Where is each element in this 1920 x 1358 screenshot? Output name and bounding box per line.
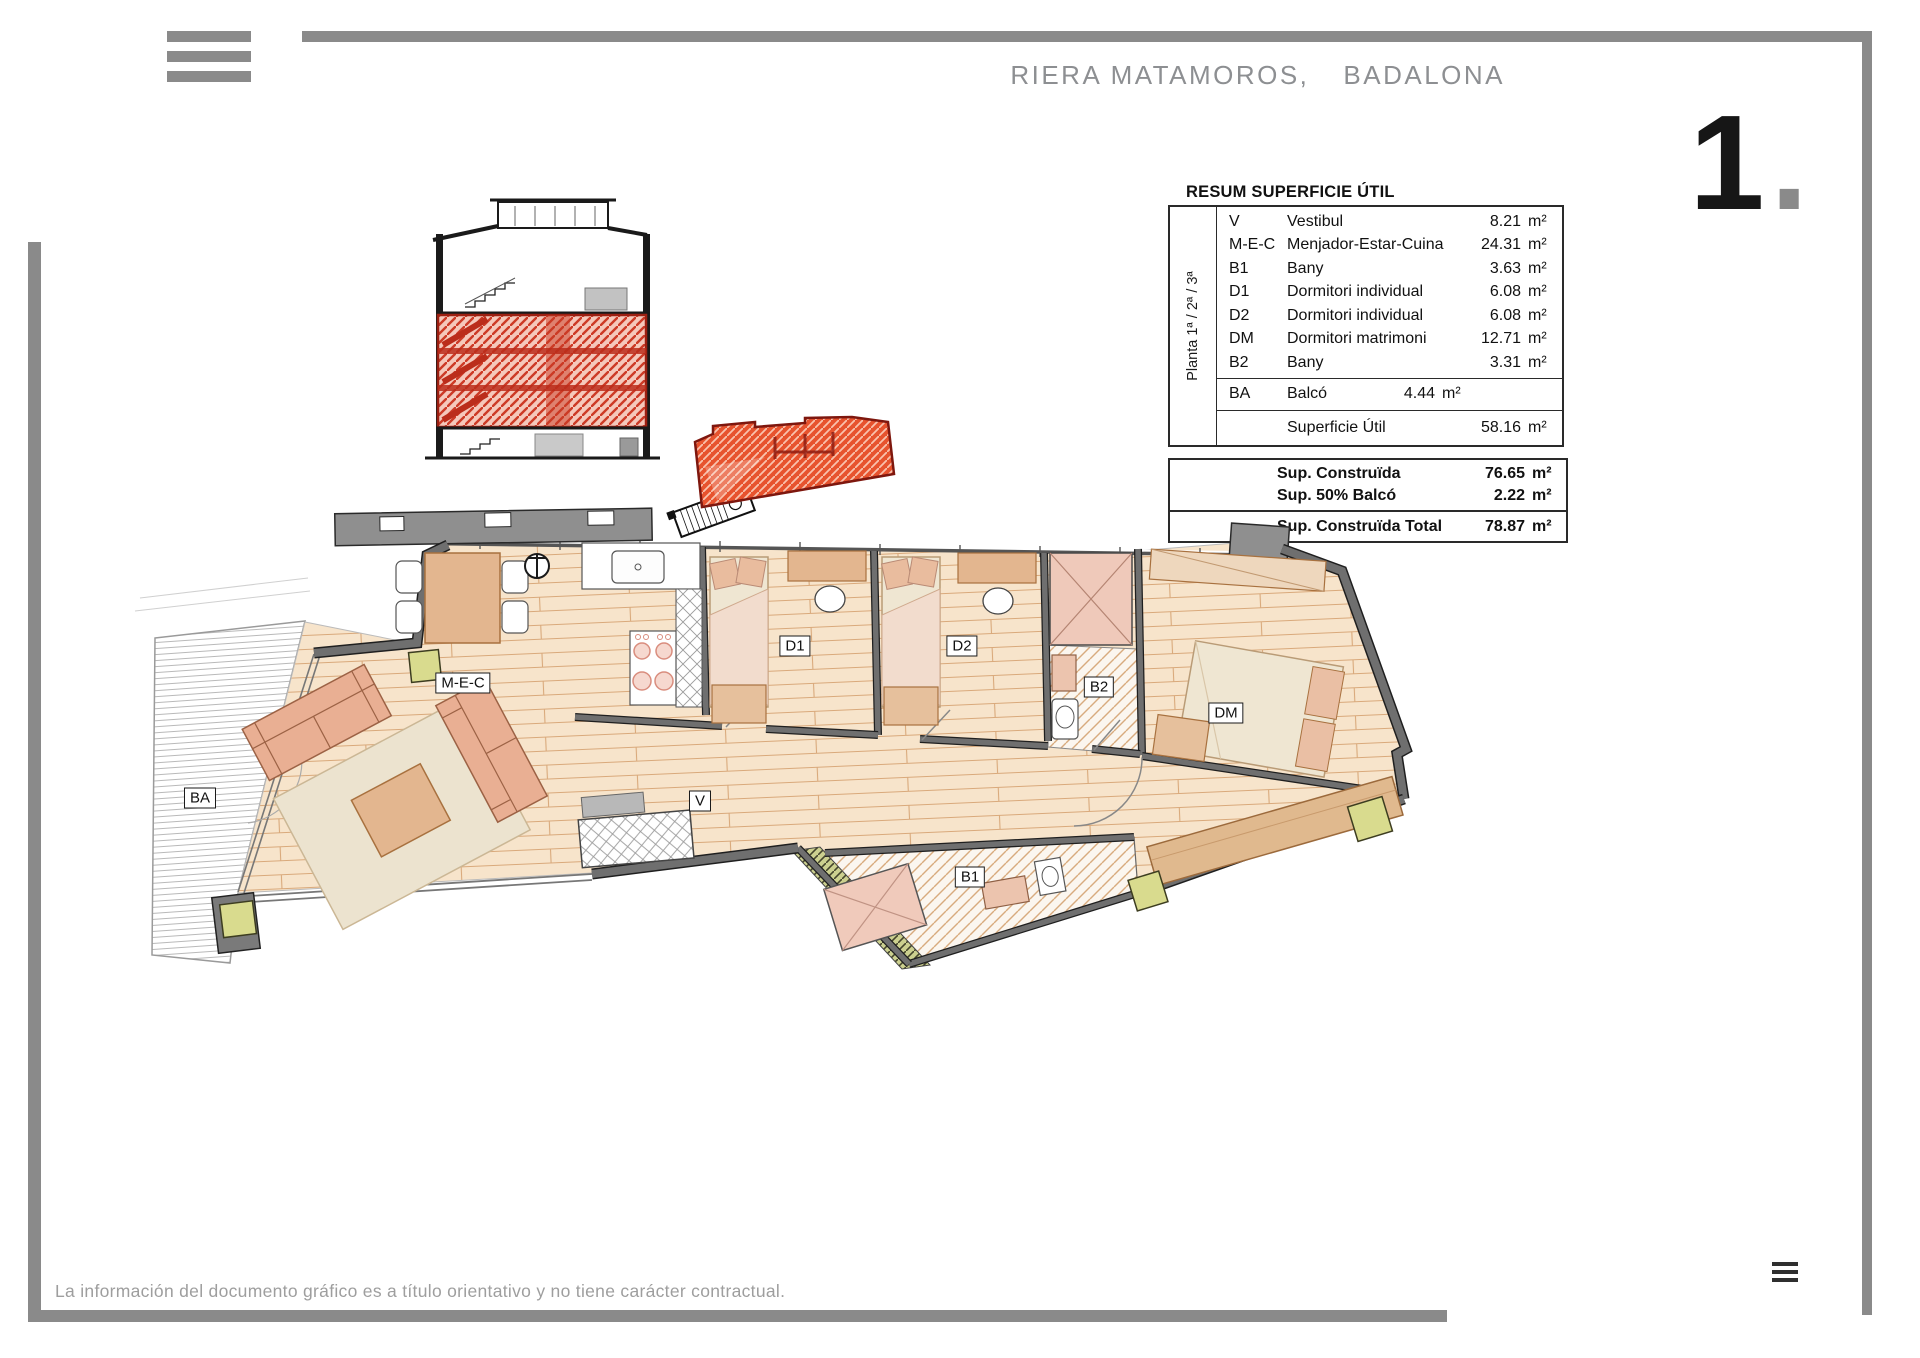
- hamburger-menu-icon-small[interactable]: [1772, 1262, 1798, 1286]
- table-row: D2Dormitori individual6.08m²: [1217, 304, 1562, 328]
- project-city: BADALONA: [1343, 60, 1505, 91]
- area-summary-table: RESUM SUPERFICIE ÚTIL Planta 1ª / 2ª / 3…: [1168, 183, 1564, 447]
- highlighted-floors: [438, 315, 646, 427]
- sheet-number: 1.: [1689, 95, 1808, 230]
- hamburger-bar: [167, 31, 251, 42]
- disclaimer-text: La información del documento gráfico es …: [55, 1281, 785, 1302]
- table-row: D1Dormitori individual6.08m²: [1217, 281, 1562, 305]
- table-row: B1Bany3.63m²: [1217, 257, 1562, 281]
- hamburger-bar: [1772, 1270, 1798, 1274]
- floor-plan-drawing: [130, 503, 1420, 1013]
- table-row: VVestibul8.21m²: [1217, 210, 1562, 234]
- toilet: [1034, 857, 1066, 895]
- sink: [1052, 655, 1076, 691]
- sheet-number-digit: 1: [1689, 87, 1764, 238]
- site-plan-footprint: [695, 417, 894, 507]
- plan-sheet-page: RIERA MATAMOROS, BADALONA 1. RESUM SUPER…: [0, 0, 1920, 1358]
- table-box: Planta 1ª / 2ª / 3ª VVestibul8.21m² M-E-…: [1168, 205, 1564, 447]
- frame-bottom-line: [28, 1310, 1447, 1322]
- project-location: RIERA MATAMOROS,: [1010, 60, 1309, 91]
- dresser: [1152, 715, 1209, 762]
- desk: [958, 553, 1036, 583]
- hamburger-bar: [1772, 1262, 1798, 1266]
- hamburger-menu-icon[interactable]: [167, 31, 251, 91]
- party-wall-chimneys: [335, 508, 653, 546]
- room-label-d1: D1: [779, 636, 810, 657]
- ceiling-light-icon: [525, 554, 549, 578]
- frame-left-line: [28, 242, 41, 1310]
- building-section-drawing: [330, 182, 660, 460]
- floor-label: Planta 1ª / 2ª / 3ª: [1185, 271, 1201, 381]
- room-label-v: V: [689, 791, 711, 812]
- sheet-number-dot: .: [1770, 87, 1808, 238]
- balcony-row: BABalcó4.44m²: [1217, 378, 1562, 410]
- hamburger-bar: [167, 51, 251, 62]
- kitchen-stove: [630, 631, 676, 705]
- floor-label-cell: Planta 1ª / 2ª / 3ª: [1170, 207, 1217, 445]
- hamburger-bar: [1772, 1278, 1798, 1282]
- room-label-dm: DM: [1208, 703, 1243, 724]
- wardrobe: [712, 685, 766, 723]
- chair: [815, 586, 845, 612]
- kitchen-sink: [612, 551, 664, 583]
- frame-right-line: [1862, 31, 1872, 1315]
- project-header: RIERA MATAMOROS, BADALONA: [1010, 60, 1505, 91]
- table-row: M-E-CMenjador-Estar-Cuina24.31m²: [1217, 234, 1562, 258]
- wardrobe: [884, 687, 938, 725]
- hamburger-bar: [167, 71, 251, 82]
- frame-top-line: [302, 31, 1872, 42]
- table-row: DMDormitori matrimoni12.71m²: [1217, 328, 1562, 352]
- dining-table: [425, 553, 500, 643]
- room-label-b1: B1: [955, 867, 985, 888]
- kitchen-cabinets: [676, 589, 702, 707]
- chair: [983, 588, 1013, 614]
- corner-block-bottom-left: [212, 893, 261, 954]
- room-label-d2: D2: [946, 636, 977, 657]
- room-label-b2: B2: [1084, 677, 1114, 698]
- room-label-mec: M-E-C: [435, 673, 490, 694]
- table-row: Sup. Construïda76.65m²: [1170, 463, 1566, 485]
- total-row: Superficie Útil58.16m²: [1217, 410, 1562, 445]
- table-rows: VVestibul8.21m² M-E-CMenjador-Estar-Cuin…: [1217, 207, 1562, 445]
- table-title: RESUM SUPERFICIE ÚTIL: [1168, 183, 1564, 202]
- desk: [788, 551, 866, 581]
- table-row: B2Bany3.31m²: [1217, 351, 1562, 375]
- room-label-ba: BA: [184, 788, 216, 809]
- floor-plan: BA M-E-C D1 D2 B2 DM V B1: [130, 503, 1420, 1013]
